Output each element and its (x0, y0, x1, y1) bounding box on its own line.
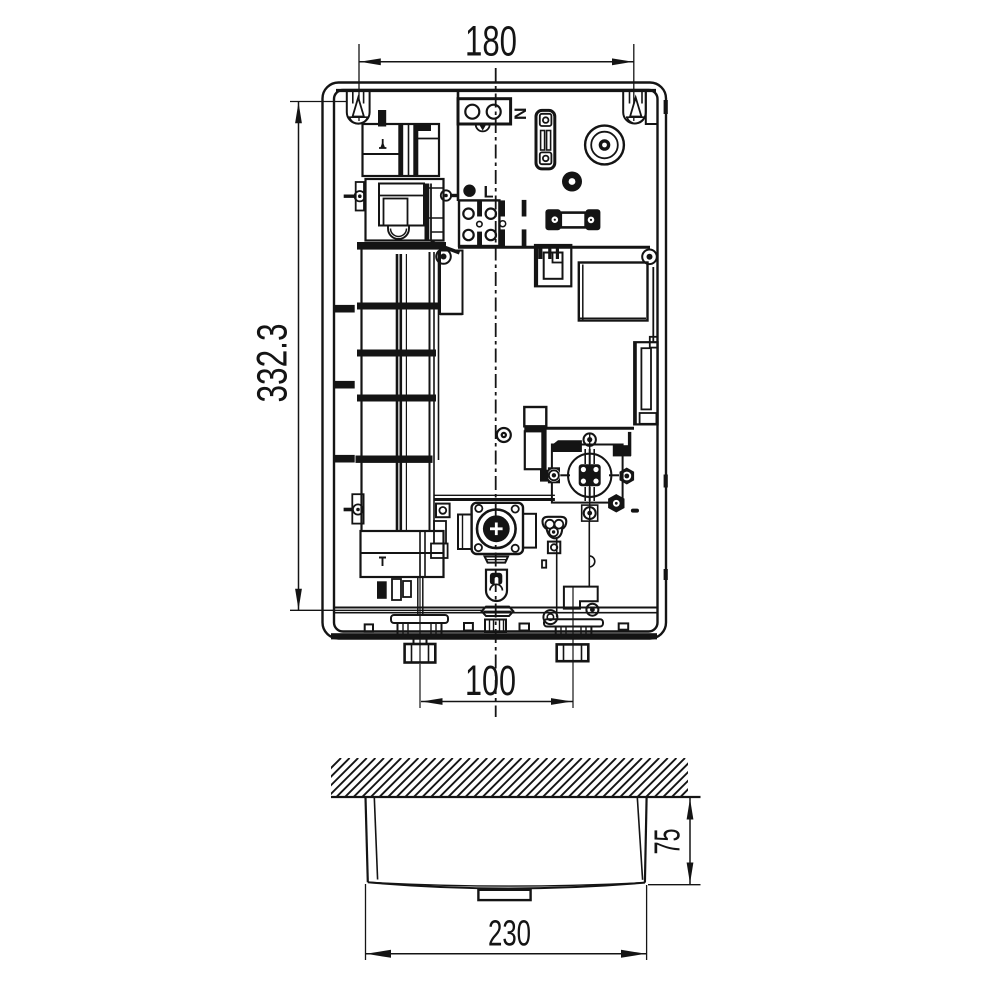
svg-text:180: 180 (465, 18, 517, 66)
svg-text:230: 230 (488, 913, 531, 954)
svg-text:N: N (511, 108, 530, 121)
svg-text:332.3: 332.3 (249, 324, 297, 403)
svg-text:75: 75 (647, 829, 688, 855)
svg-text:100: 100 (465, 657, 516, 705)
svg-text:L: L (484, 183, 494, 202)
